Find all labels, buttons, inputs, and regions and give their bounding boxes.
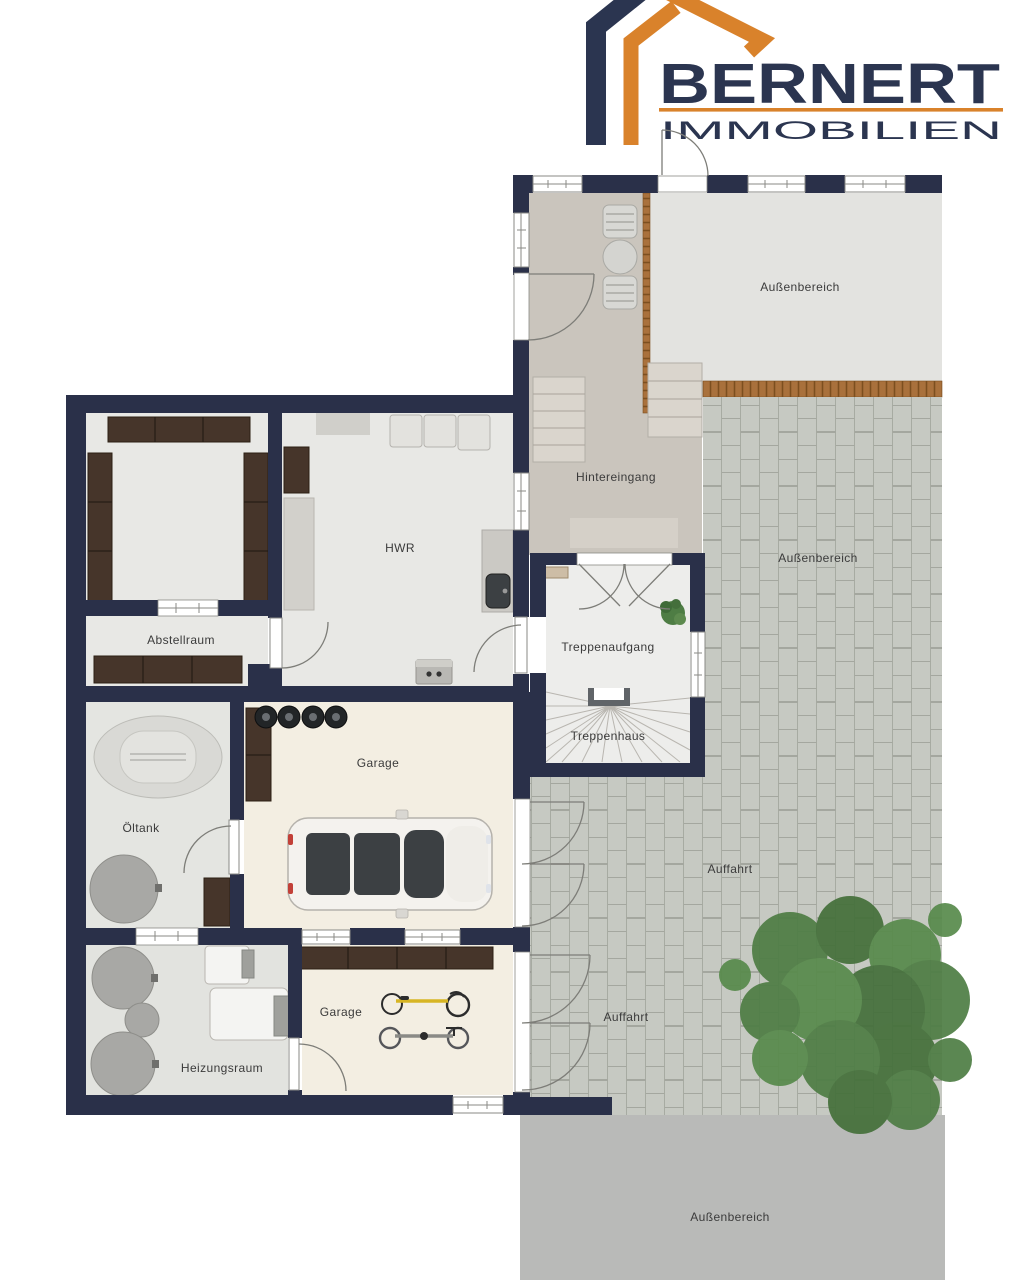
boiler-tank (91, 1032, 155, 1096)
mat (316, 413, 370, 435)
boiler-tank (92, 947, 154, 1009)
label-auffahrt-oben: Auffahrt (707, 862, 752, 876)
window (533, 176, 582, 192)
appliance (424, 415, 456, 447)
terrace-furniture (603, 205, 637, 309)
round-tank (90, 855, 158, 923)
window (691, 632, 705, 697)
outdoor-area-bottom (520, 1115, 945, 1280)
label-treppenhaus: Treppenhaus (571, 729, 646, 743)
tall-cabinet (284, 498, 314, 610)
brand-subtitle: IMMOBILIEN (660, 117, 1002, 145)
appliance (390, 415, 422, 447)
car-top-view (288, 810, 492, 918)
brand-name: BERNERT (659, 52, 1000, 116)
shelf (204, 878, 230, 926)
round-table (603, 240, 637, 274)
wall-opening (136, 928, 198, 945)
label-auffahrt-unten: Auffahrt (603, 1010, 648, 1024)
label-treppenaufgang: Treppenaufgang (561, 640, 654, 654)
wall-opening (158, 600, 218, 616)
window (405, 930, 460, 944)
window (845, 176, 905, 192)
retaining-wall-stub (520, 1097, 612, 1115)
brand-rule (659, 108, 1003, 112)
label-oeltank: Öltank (122, 821, 160, 835)
label-garage-unten: Garage (320, 1005, 362, 1019)
window (514, 213, 529, 267)
wood-edge-horizontal (703, 381, 942, 397)
label-hwr: HWR (385, 541, 415, 555)
door-mat (570, 518, 678, 548)
label-aussenbereich-mitte: Außenbereich (778, 551, 858, 565)
window (302, 930, 350, 944)
label-heizungsraum: Heizungsraum (181, 1061, 263, 1075)
window (453, 1097, 503, 1113)
label-aussenbereich-oben: Außenbereich (760, 280, 840, 294)
cabinet (284, 447, 309, 493)
appliance (458, 415, 490, 450)
label-garage-oben: Garage (357, 756, 399, 770)
label-aussenbereich-unten: Außenbereich (690, 1210, 770, 1224)
label-abstellraum: Abstellraum (147, 633, 215, 647)
small-tank (125, 1003, 159, 1037)
window (514, 473, 529, 530)
window (748, 176, 805, 192)
floor-plan-canvas: BERNERT IMMOBILIEN (0, 0, 1018, 1280)
label-hintereingang: Hintereingang (576, 470, 656, 484)
floor-plan-page: BERNERT IMMOBILIEN (0, 0, 1018, 1280)
